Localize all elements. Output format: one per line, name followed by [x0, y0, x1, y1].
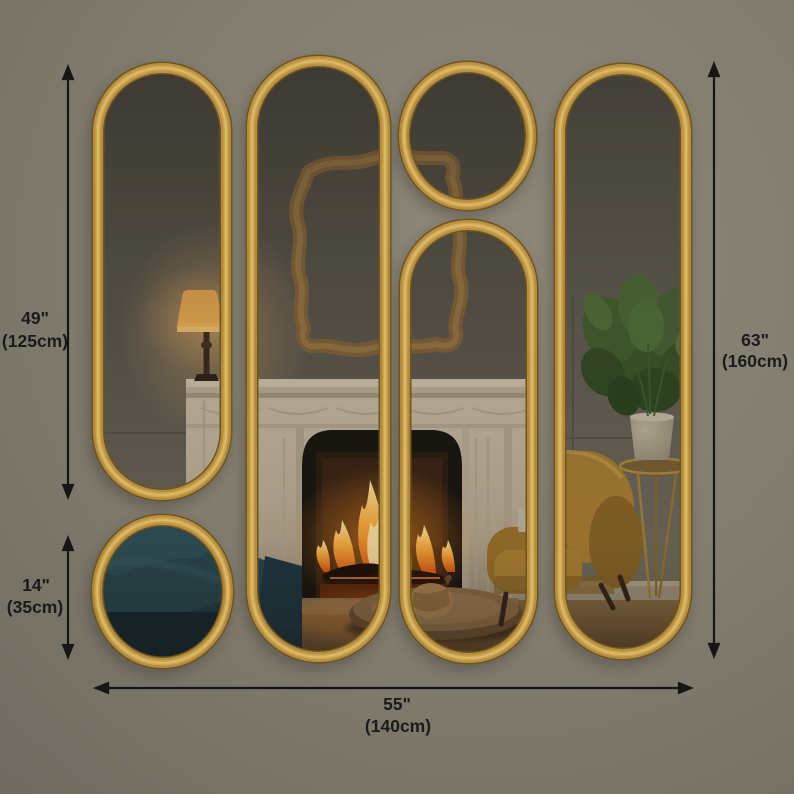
- svg-text:49": 49": [21, 308, 49, 328]
- svg-text:(35cm): (35cm): [7, 597, 63, 617]
- svg-text:14": 14": [22, 575, 50, 595]
- svg-text:(125cm): (125cm): [2, 331, 68, 351]
- svg-text:(160cm): (160cm): [722, 351, 788, 371]
- svg-text:(140cm): (140cm): [365, 716, 431, 736]
- svg-text:55": 55": [383, 694, 411, 714]
- svg-text:63": 63": [741, 330, 769, 350]
